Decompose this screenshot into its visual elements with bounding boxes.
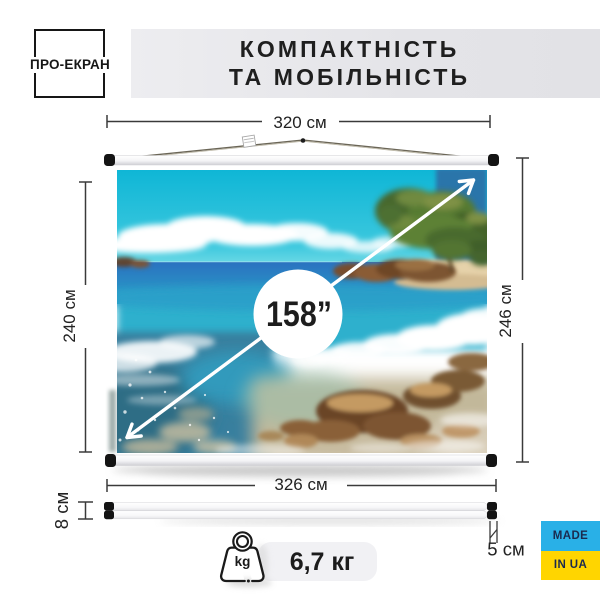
svg-text:8 см: 8 см xyxy=(51,492,72,529)
svg-text:158”: 158” xyxy=(266,294,332,334)
svg-text:246 см: 246 см xyxy=(496,284,515,337)
svg-text:320 см: 320 см xyxy=(273,113,326,132)
svg-text:kg: kg xyxy=(235,554,251,569)
svg-text:240 см: 240 см xyxy=(60,289,79,342)
svg-text:5 см: 5 см xyxy=(487,539,524,560)
svg-text:326 см: 326 см xyxy=(274,475,327,494)
svg-text:6,7 кг: 6,7 кг xyxy=(290,548,355,576)
